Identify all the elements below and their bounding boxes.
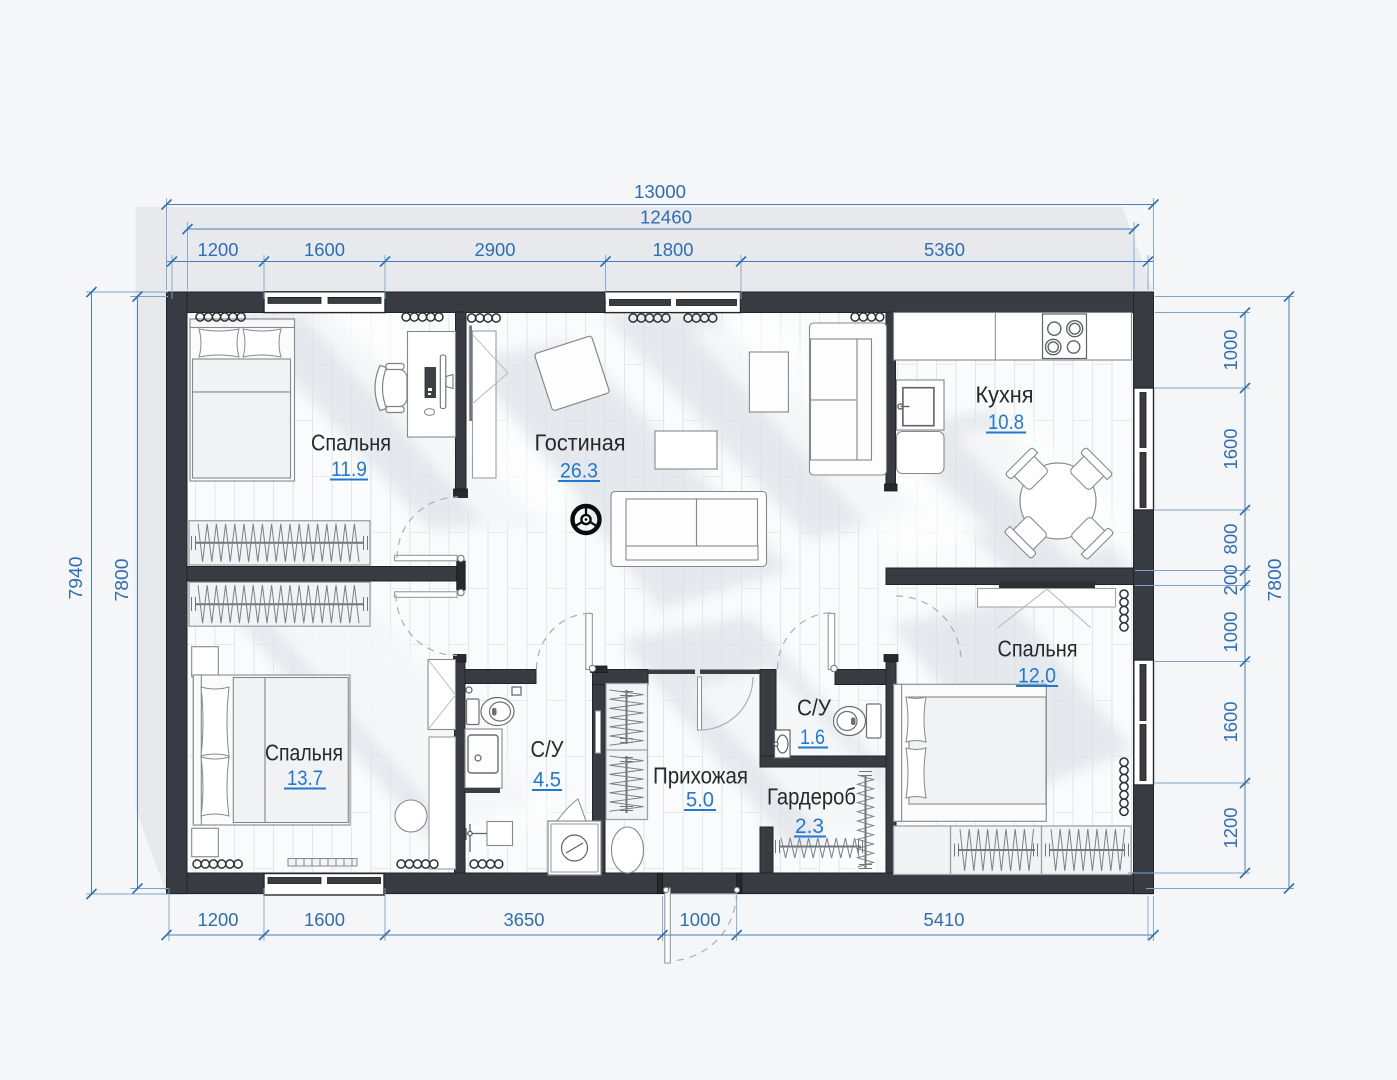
svg-text:7940: 7940 [65,557,86,600]
svg-text:1200: 1200 [198,239,239,260]
svg-text:Гардероб: Гардероб [767,784,856,810]
svg-text:С/У: С/У [797,695,832,721]
svg-text:Спальня: Спальня [265,740,343,766]
svg-text:12460: 12460 [640,207,692,228]
svg-text:7800: 7800 [111,559,132,602]
svg-text:5410: 5410 [924,909,965,930]
svg-text:Прихожая: Прихожая [653,763,748,789]
svg-text:1600: 1600 [1220,702,1241,743]
svg-text:1200: 1200 [1220,808,1241,849]
svg-text:3650: 3650 [504,909,545,930]
svg-text:13.7: 13.7 [287,767,323,790]
svg-text:С/У: С/У [531,736,565,762]
svg-text:13000: 13000 [634,181,686,202]
svg-text:7800: 7800 [1264,559,1285,602]
svg-text:Спальня: Спальня [311,430,391,456]
svg-text:2900: 2900 [475,239,516,260]
svg-text:1600: 1600 [1220,429,1241,470]
svg-text:Гостиная: Гостиная [535,430,626,456]
svg-text:1600: 1600 [304,239,345,260]
svg-text:Спальня: Спальня [998,636,1078,662]
svg-text:1000: 1000 [1220,612,1241,653]
svg-text:10.8: 10.8 [988,411,1024,434]
svg-text:5.0: 5.0 [686,789,714,812]
svg-text:4.5: 4.5 [533,769,561,792]
svg-text:200: 200 [1220,565,1241,596]
svg-text:1800: 1800 [653,239,694,260]
svg-text:1.6: 1.6 [800,726,825,749]
svg-text:Кухня: Кухня [976,382,1034,408]
svg-text:1000: 1000 [680,909,721,930]
svg-text:1600: 1600 [304,909,345,930]
svg-text:11.9: 11.9 [331,458,367,481]
svg-text:2.3: 2.3 [795,815,824,838]
svg-text:800: 800 [1220,524,1241,555]
svg-text:1000: 1000 [1220,330,1241,371]
svg-text:26.3: 26.3 [560,460,598,483]
svg-text:5360: 5360 [924,239,965,260]
svg-text:1200: 1200 [198,909,239,930]
svg-text:12.0: 12.0 [1018,665,1056,688]
